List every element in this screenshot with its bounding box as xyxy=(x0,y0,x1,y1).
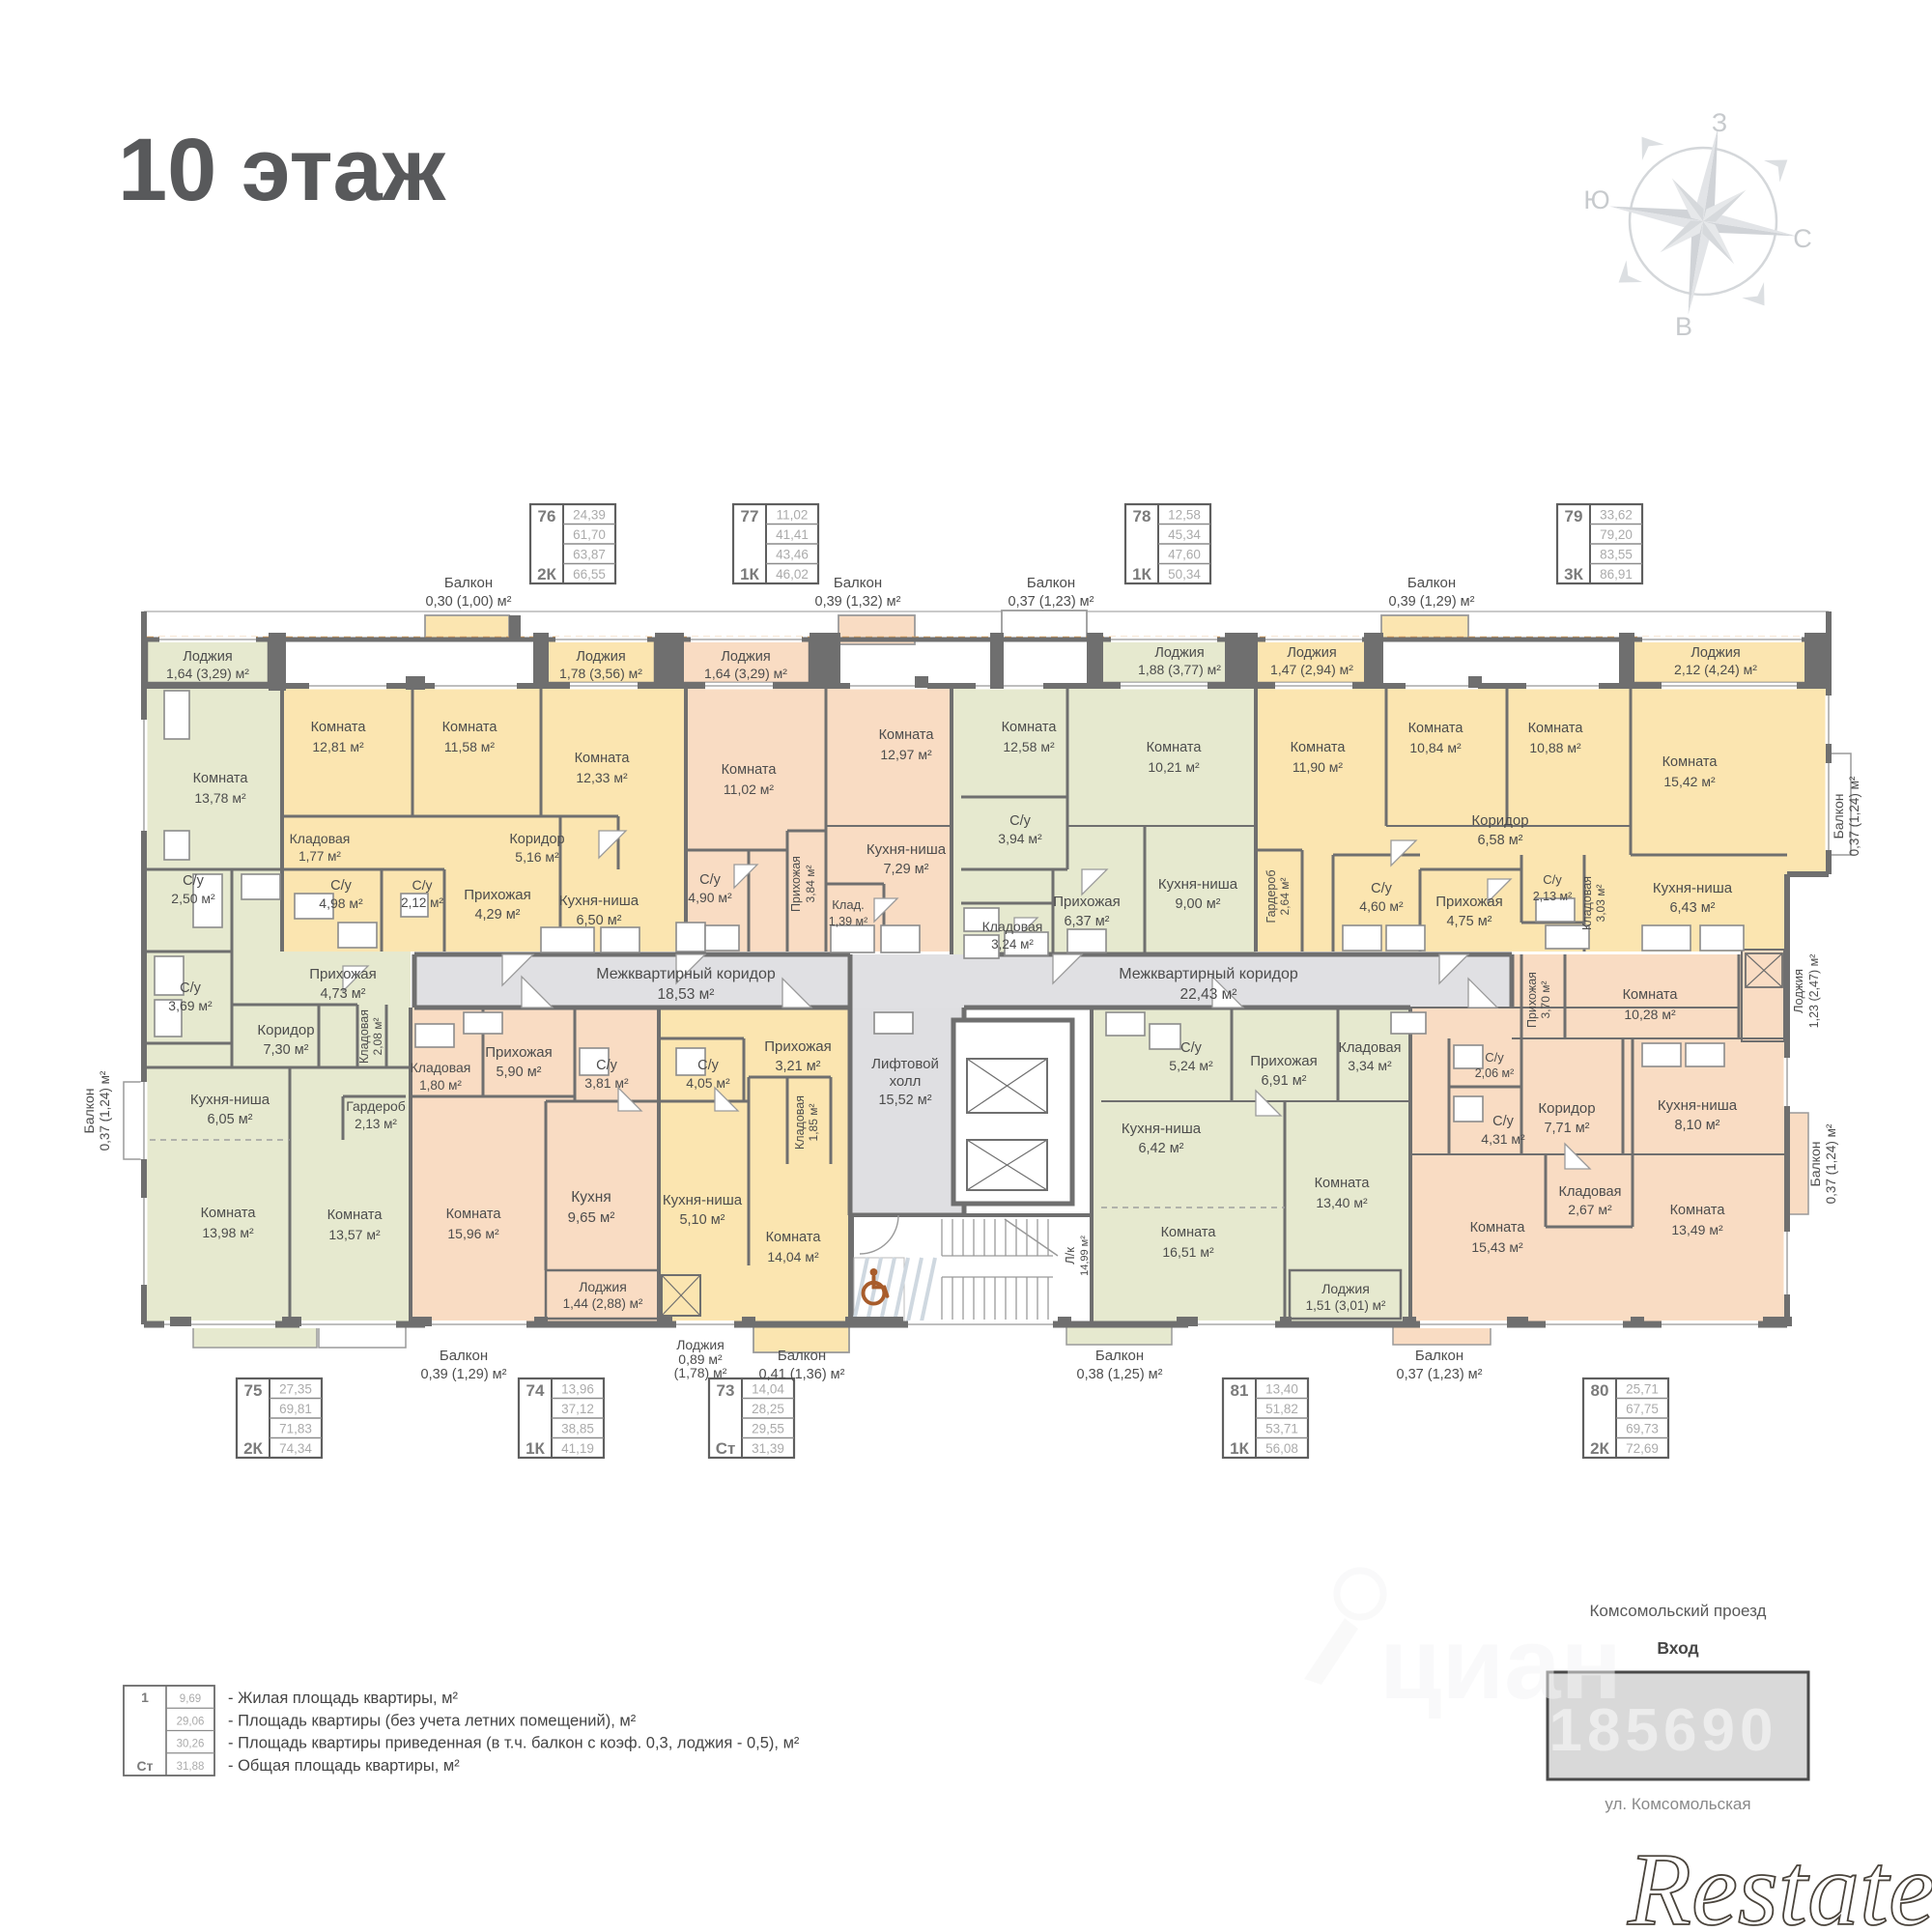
svg-text:4,75 м²: 4,75 м² xyxy=(1446,914,1492,929)
svg-text:Гардероб: Гардероб xyxy=(346,1098,406,1114)
svg-text:7,29 м²: 7,29 м² xyxy=(883,862,928,877)
svg-text:12,58: 12,58 xyxy=(1168,508,1201,523)
svg-text:13,40 м²: 13,40 м² xyxy=(1316,1195,1368,1210)
svg-text:6,43 м²: 6,43 м² xyxy=(1669,900,1715,916)
svg-text:3,21 м²: 3,21 м² xyxy=(775,1059,820,1074)
svg-text:72,69: 72,69 xyxy=(1626,1441,1659,1456)
svg-text:3,81 м²: 3,81 м² xyxy=(584,1075,629,1091)
svg-text:6,37 м²: 6,37 м² xyxy=(1064,914,1109,929)
svg-text:1,39 м²: 1,39 м² xyxy=(829,915,868,928)
svg-text:13,96: 13,96 xyxy=(561,1382,594,1397)
svg-text:Прихожая: Прихожая xyxy=(464,887,531,903)
svg-text:С/у: С/у xyxy=(1543,872,1562,887)
svg-text:Клад.: Клад. xyxy=(832,897,865,912)
svg-text:1К: 1К xyxy=(740,565,759,583)
svg-text:12,33 м²: 12,33 м² xyxy=(576,770,628,785)
svg-text:Кладовая: Кладовая xyxy=(1580,876,1594,930)
svg-text:41,41: 41,41 xyxy=(776,527,809,542)
svg-text:3,94 м²: 3,94 м² xyxy=(998,831,1042,846)
svg-text:Лоджия: Лоджия xyxy=(183,649,232,665)
svg-text:Комната: Комната xyxy=(1662,754,1719,770)
svg-text:77: 77 xyxy=(741,507,759,526)
svg-text:Комната: Комната xyxy=(1315,1176,1371,1191)
svg-text:Коридор: Коридор xyxy=(1538,1100,1595,1117)
svg-text:1: 1 xyxy=(141,1690,149,1705)
svg-text:Комната: Комната xyxy=(1470,1220,1526,1236)
svg-text:Балкон: Балкон xyxy=(834,575,882,591)
svg-text:18,53 м²: 18,53 м² xyxy=(658,986,715,1003)
svg-text:Лоджия: Лоджия xyxy=(1287,645,1336,661)
svg-text:- Площадь квартиры приведенна: - Площадь квартиры приведенная (в т.ч. б… xyxy=(228,1735,800,1752)
svg-text:Лоджия: Лоджия xyxy=(1690,645,1740,661)
svg-text:4,05 м²: 4,05 м² xyxy=(686,1075,730,1091)
svg-text:69,73: 69,73 xyxy=(1626,1422,1659,1436)
svg-text:13,78 м²: 13,78 м² xyxy=(194,790,246,806)
svg-text:2,64 м²: 2,64 м² xyxy=(1278,878,1292,916)
svg-text:Прихожая: Прихожая xyxy=(1053,894,1121,910)
svg-text:циан: циан xyxy=(1379,1607,1622,1720)
svg-text:14,99 м²: 14,99 м² xyxy=(1079,1236,1091,1276)
svg-text:3,84 м²: 3,84 м² xyxy=(804,866,817,903)
svg-text:С/у: С/у xyxy=(596,1058,618,1073)
svg-text:ул. Комсомольская: ул. Комсомольская xyxy=(1605,1795,1750,1813)
svg-text:Комната: Комната xyxy=(1623,987,1679,1003)
svg-text:1,23 (2,47) м²: 1,23 (2,47) м² xyxy=(1807,954,1821,1029)
svg-text:Балкон: Балкон xyxy=(1027,575,1075,591)
svg-text:Кухня-ниша: Кухня-ниша xyxy=(663,1192,743,1208)
svg-text:Restate: Restate xyxy=(1627,1833,1932,1932)
svg-text:Коридор: Коридор xyxy=(1471,812,1528,829)
svg-text:Лоджия: Лоджия xyxy=(579,1279,627,1294)
svg-text:2,67 м²: 2,67 м² xyxy=(1568,1202,1612,1217)
svg-text:6,05 м²: 6,05 м² xyxy=(207,1112,252,1127)
svg-text:22,43 м²: 22,43 м² xyxy=(1180,986,1237,1003)
svg-text:Лоджия: Лоджия xyxy=(576,649,625,665)
svg-text:2К: 2К xyxy=(1590,1439,1609,1458)
svg-text:30,26: 30,26 xyxy=(177,1739,205,1750)
svg-text:Комната: Комната xyxy=(442,720,498,735)
svg-text:0,37 (1,24) м²: 0,37 (1,24) м² xyxy=(1847,776,1861,856)
svg-text:Коридор: Коридор xyxy=(257,1022,314,1038)
svg-text:67,75: 67,75 xyxy=(1626,1402,1659,1416)
svg-text:Лифтовой: Лифтовой xyxy=(871,1056,939,1072)
svg-text:0,37 (1,24) м²: 0,37 (1,24) м² xyxy=(98,1070,112,1151)
svg-text:2,50 м²: 2,50 м² xyxy=(171,891,215,906)
svg-text:Комната: Комната xyxy=(1408,721,1464,736)
svg-text:74,34: 74,34 xyxy=(279,1441,312,1456)
svg-text:31,88: 31,88 xyxy=(177,1761,205,1773)
svg-text:3,69 м²: 3,69 м² xyxy=(168,998,213,1013)
svg-text:2,06 м²: 2,06 м² xyxy=(1475,1066,1515,1080)
svg-text:0,41 (1,36) м²: 0,41 (1,36) м² xyxy=(759,1367,845,1382)
svg-text:Балкон: Балкон xyxy=(1095,1348,1144,1364)
svg-text:14,04 м²: 14,04 м² xyxy=(767,1249,819,1264)
svg-text:10 этаж: 10 этаж xyxy=(118,121,446,219)
svg-text:З: З xyxy=(1712,108,1727,137)
svg-text:Прихожая: Прихожая xyxy=(789,856,803,912)
svg-text:4,31 м²: 4,31 м² xyxy=(1481,1131,1525,1147)
svg-text:10,28 м²: 10,28 м² xyxy=(1624,1007,1676,1022)
svg-text:2,13 м²: 2,13 м² xyxy=(355,1117,397,1131)
svg-text:Прихожая: Прихожая xyxy=(764,1038,832,1055)
svg-text:С/у: С/у xyxy=(1492,1114,1515,1129)
svg-text:80: 80 xyxy=(1591,1381,1609,1400)
svg-text:Комната: Комната xyxy=(766,1230,822,1245)
svg-text:Вход: Вход xyxy=(1657,1638,1698,1658)
svg-text:31,39: 31,39 xyxy=(752,1441,784,1456)
svg-text:Лоджия: Лоджия xyxy=(1154,645,1204,661)
svg-text:Л/к: Л/к xyxy=(1063,1247,1077,1264)
svg-text:Комната: Комната xyxy=(879,727,935,743)
svg-text:Балкон: Балкон xyxy=(1831,794,1846,839)
svg-text:- Площадь квартиры (без учета: - Площадь квартиры (без учета летних пом… xyxy=(228,1712,637,1729)
svg-text:Кладовая: Кладовая xyxy=(290,831,351,846)
svg-text:1,77 м²: 1,77 м² xyxy=(298,849,341,864)
svg-text:Комната: Комната xyxy=(1002,720,1058,735)
svg-text:38,85: 38,85 xyxy=(561,1422,594,1436)
svg-text:Лоджия: Лоджия xyxy=(1791,969,1805,1013)
svg-text:37,12: 37,12 xyxy=(561,1402,594,1416)
svg-text:3,24 м²: 3,24 м² xyxy=(991,937,1034,952)
svg-text:Кухня-ниша: Кухня-ниша xyxy=(1658,1097,1738,1114)
svg-text:Балкон: Балкон xyxy=(1415,1348,1463,1364)
svg-text:С/у: С/у xyxy=(1485,1050,1504,1065)
svg-text:12,58 м²: 12,58 м² xyxy=(1003,739,1055,754)
svg-text:- Общая площадь квартиры, м²: - Общая площадь квартиры, м² xyxy=(228,1757,460,1775)
svg-text:Прихожая: Прихожая xyxy=(1525,972,1539,1028)
svg-text:0,37 (1,23) м²: 0,37 (1,23) м² xyxy=(1397,1367,1483,1382)
svg-text:1,85 м²: 1,85 м² xyxy=(807,1104,820,1142)
svg-text:холл: холл xyxy=(890,1073,922,1090)
svg-text:С/у: С/у xyxy=(412,877,433,893)
svg-text:Комната: Комната xyxy=(1161,1225,1217,1240)
svg-text:Кухня-ниша: Кухня-ниша xyxy=(1653,880,1733,896)
svg-text:45,34: 45,34 xyxy=(1168,527,1201,542)
svg-text:27,35: 27,35 xyxy=(279,1382,312,1397)
svg-text:7,30 м²: 7,30 м² xyxy=(263,1042,308,1058)
svg-text:7,71 м²: 7,71 м² xyxy=(1544,1121,1589,1136)
svg-text:13,49 м²: 13,49 м² xyxy=(1671,1222,1723,1237)
svg-text:6,91 м²: 6,91 м² xyxy=(1261,1073,1306,1089)
svg-text:Межквартирный коридор: Межквартирный коридор xyxy=(596,966,776,982)
svg-text:24,39: 24,39 xyxy=(573,508,606,523)
svg-text:С/у: С/у xyxy=(697,1058,720,1073)
svg-text:1,64 (3,29) м²: 1,64 (3,29) м² xyxy=(704,666,787,681)
svg-text:С/у: С/у xyxy=(330,878,353,894)
svg-text:0,39 (1,29) м²: 0,39 (1,29) м² xyxy=(1389,594,1475,610)
svg-text:81: 81 xyxy=(1231,1381,1249,1400)
svg-text:Балкон: Балкон xyxy=(440,1348,488,1364)
svg-text:2К: 2К xyxy=(537,565,556,583)
svg-text:Кухня: Кухня xyxy=(571,1189,611,1206)
svg-text:Комната: Комната xyxy=(193,771,249,786)
svg-text:11,58 м²: 11,58 м² xyxy=(444,739,496,754)
svg-text:(1,78) м²: (1,78) м² xyxy=(674,1365,727,1380)
svg-text:4,60 м²: 4,60 м² xyxy=(1359,898,1404,914)
svg-text:Ст: Ст xyxy=(716,1439,736,1458)
svg-text:Кухня-ниша: Кухня-ниша xyxy=(559,893,639,909)
svg-text:41,19: 41,19 xyxy=(561,1441,594,1456)
svg-text:Комната: Комната xyxy=(327,1207,384,1223)
svg-text:Лоджия: Лоджия xyxy=(1321,1281,1370,1296)
svg-text:Кладовая: Кладовая xyxy=(357,1009,371,1064)
svg-text:Прихожая: Прихожая xyxy=(485,1044,553,1061)
svg-text:11,02 м²: 11,02 м² xyxy=(724,781,775,797)
svg-text:6,58 м²: 6,58 м² xyxy=(1477,833,1522,848)
svg-text:С/у: С/у xyxy=(1180,1040,1203,1056)
svg-text:С/у: С/у xyxy=(1009,813,1032,829)
svg-text:0,39 (1,29) м²: 0,39 (1,29) м² xyxy=(421,1367,507,1382)
svg-text:11,02: 11,02 xyxy=(777,508,809,523)
svg-text:5,10 м²: 5,10 м² xyxy=(679,1212,724,1228)
svg-text:1,64 (3,29) м²: 1,64 (3,29) м² xyxy=(166,666,249,681)
svg-text:5,90 м²: 5,90 м² xyxy=(496,1065,541,1080)
svg-text:4,98 м²: 4,98 м² xyxy=(319,895,363,911)
svg-text:Балкон: Балкон xyxy=(1807,1142,1823,1187)
svg-text:1,44 (2,88) м²: 1,44 (2,88) м² xyxy=(563,1296,643,1311)
svg-text:56,08: 56,08 xyxy=(1265,1441,1298,1456)
svg-text:6,42 м²: 6,42 м² xyxy=(1138,1141,1183,1156)
svg-text:Комната: Комната xyxy=(722,762,778,778)
svg-text:28,25: 28,25 xyxy=(752,1402,784,1416)
svg-text:12,81 м²: 12,81 м² xyxy=(312,739,364,754)
svg-text:66,55: 66,55 xyxy=(573,567,606,582)
svg-text:2,08 м²: 2,08 м² xyxy=(371,1018,384,1056)
svg-text:50,34: 50,34 xyxy=(1168,567,1201,582)
svg-text:9,00 м²: 9,00 м² xyxy=(1175,896,1220,912)
svg-text:Комната: Комната xyxy=(1291,740,1347,755)
svg-text:Комната: Комната xyxy=(446,1207,502,1222)
svg-text:13,57 м²: 13,57 м² xyxy=(328,1227,381,1242)
svg-text:Коридор: Коридор xyxy=(509,832,564,847)
svg-text:4,90 м²: 4,90 м² xyxy=(688,890,732,905)
svg-text:76: 76 xyxy=(538,507,556,526)
svg-text:46,02: 46,02 xyxy=(776,567,809,582)
svg-text:1К: 1К xyxy=(1132,565,1151,583)
svg-text:Кухня-ниша: Кухня-ниша xyxy=(190,1092,270,1108)
svg-text:79: 79 xyxy=(1565,507,1583,526)
svg-text:Лоджия: Лоджия xyxy=(676,1337,724,1352)
svg-text:3К: 3К xyxy=(1564,565,1583,583)
svg-text:1,88 (3,77) м²: 1,88 (3,77) м² xyxy=(1138,662,1221,677)
svg-text:0,39 (1,32) м²: 0,39 (1,32) м² xyxy=(815,594,901,610)
svg-text:79,20: 79,20 xyxy=(1600,527,1633,542)
svg-text:Прихожая: Прихожая xyxy=(1435,894,1503,910)
svg-text:Комната: Комната xyxy=(201,1206,257,1221)
svg-text:0,37 (1,23) м²: 0,37 (1,23) м² xyxy=(1009,594,1094,610)
svg-text:1,78 (3,56) м²: 1,78 (3,56) м² xyxy=(559,666,642,681)
svg-text:0,30 (1,00) м²: 0,30 (1,00) м² xyxy=(426,594,512,610)
svg-text:0,37 (1,24) м²: 0,37 (1,24) м² xyxy=(1824,1123,1838,1204)
svg-text:Комната: Комната xyxy=(1147,740,1203,755)
svg-text:- Жилая площадь квартиры, м²: - Жилая площадь квартиры, м² xyxy=(228,1690,458,1707)
svg-text:Кухня-ниша: Кухня-ниша xyxy=(1158,876,1238,893)
svg-text:Комната: Комната xyxy=(1670,1203,1726,1218)
svg-text:11,90 м²: 11,90 м² xyxy=(1293,759,1344,775)
svg-text:Лоджия: Лоджия xyxy=(721,649,770,665)
svg-text:10,84 м²: 10,84 м² xyxy=(1409,740,1462,755)
svg-text:Прихожая: Прихожая xyxy=(1250,1053,1318,1069)
svg-text:53,71: 53,71 xyxy=(1265,1422,1298,1436)
svg-text:15,52 м²: 15,52 м² xyxy=(878,1093,931,1108)
svg-text:Балкон: Балкон xyxy=(444,575,493,591)
svg-text:69,81: 69,81 xyxy=(279,1402,312,1416)
svg-text:С/у: С/у xyxy=(180,980,202,996)
svg-text:15,43 м²: 15,43 м² xyxy=(1471,1239,1523,1255)
svg-text:С/у: С/у xyxy=(183,873,205,889)
svg-text:3,03 м²: 3,03 м² xyxy=(1594,885,1607,923)
svg-text:Кладовая: Кладовая xyxy=(1339,1040,1402,1056)
svg-text:12,97 м²: 12,97 м² xyxy=(880,747,932,762)
svg-text:Кладовая: Кладовая xyxy=(982,919,1043,934)
svg-text:Кухня-ниша: Кухня-ниша xyxy=(867,841,947,858)
svg-text:51,82: 51,82 xyxy=(1265,1402,1298,1416)
svg-text:3,70 м²: 3,70 м² xyxy=(1539,981,1552,1019)
svg-text:0,38 (1,25) м²: 0,38 (1,25) м² xyxy=(1077,1367,1163,1382)
svg-text:15,42 м²: 15,42 м² xyxy=(1663,774,1716,789)
svg-text:С: С xyxy=(1793,224,1812,253)
svg-text:Межквартирный коридор: Межквартирный коридор xyxy=(1119,966,1298,982)
svg-text:Балкон: Балкон xyxy=(81,1089,97,1134)
svg-text:25,71: 25,71 xyxy=(1626,1382,1659,1397)
svg-text:2,13 м²: 2,13 м² xyxy=(1533,890,1573,903)
svg-text:1К: 1К xyxy=(1230,1439,1249,1458)
svg-text:71,83: 71,83 xyxy=(279,1422,312,1436)
svg-text:3,34 м²: 3,34 м² xyxy=(1348,1058,1392,1073)
svg-text:Гардероб: Гардероб xyxy=(1264,870,1278,923)
svg-text:5,16 м²: 5,16 м² xyxy=(515,849,559,865)
svg-text:10,21 м²: 10,21 м² xyxy=(1148,759,1200,775)
svg-text:33,62: 33,62 xyxy=(1600,508,1633,523)
svg-text:75: 75 xyxy=(244,1381,263,1400)
svg-text:14,04: 14,04 xyxy=(752,1382,784,1397)
svg-text:8,10 м²: 8,10 м² xyxy=(1674,1118,1719,1133)
svg-text:83,55: 83,55 xyxy=(1600,548,1633,562)
svg-text:1,47 (2,94) м²: 1,47 (2,94) м² xyxy=(1270,662,1353,677)
svg-text:15,96 м²: 15,96 м² xyxy=(447,1226,499,1241)
svg-text:Комната: Комната xyxy=(311,720,367,735)
svg-text:47,60: 47,60 xyxy=(1168,548,1201,562)
svg-text:Комната: Комната xyxy=(575,751,631,766)
svg-text:Ю: Ю xyxy=(1583,185,1609,214)
svg-text:1,80 м²: 1,80 м² xyxy=(419,1078,462,1093)
svg-text:78: 78 xyxy=(1133,507,1151,526)
svg-text:6,50 м²: 6,50 м² xyxy=(576,913,621,928)
svg-text:29,06: 29,06 xyxy=(177,1716,205,1727)
svg-text:Ст: Ст xyxy=(137,1758,154,1774)
svg-text:5,24 м²: 5,24 м² xyxy=(1169,1058,1213,1073)
svg-text:43,46: 43,46 xyxy=(776,548,809,562)
svg-text:1,51 (3,01) м²: 1,51 (3,01) м² xyxy=(1306,1298,1386,1313)
svg-text:10,88 м²: 10,88 м² xyxy=(1529,740,1581,755)
svg-text:Кладовая: Кладовая xyxy=(1559,1184,1622,1200)
svg-text:1К: 1К xyxy=(526,1439,545,1458)
svg-text:29,55: 29,55 xyxy=(752,1422,784,1436)
svg-text:63,87: 63,87 xyxy=(573,548,606,562)
svg-text:Кухня-ниша: Кухня-ниша xyxy=(1122,1121,1202,1137)
svg-text:73: 73 xyxy=(717,1381,735,1400)
svg-text:Комната: Комната xyxy=(1528,721,1584,736)
svg-text:2,12 (4,24) м²: 2,12 (4,24) м² xyxy=(1674,662,1757,677)
svg-text:Прихожая: Прихожая xyxy=(309,966,377,982)
svg-text:В: В xyxy=(1675,312,1692,341)
svg-text:4,29 м²: 4,29 м² xyxy=(474,907,520,923)
svg-text:9,65 м²: 9,65 м² xyxy=(568,1209,615,1226)
svg-text:2,12 м²: 2,12 м² xyxy=(401,895,443,910)
svg-text:Кладовая: Кладовая xyxy=(793,1095,807,1150)
svg-text:61,70: 61,70 xyxy=(573,527,606,542)
svg-text:16,51 м²: 16,51 м² xyxy=(1162,1244,1214,1260)
svg-text:13,98 м²: 13,98 м² xyxy=(202,1225,254,1240)
svg-text:9,69: 9,69 xyxy=(180,1693,201,1705)
svg-text:С/у: С/у xyxy=(699,872,722,888)
svg-text:86,91: 86,91 xyxy=(1600,567,1633,582)
svg-text:2К: 2К xyxy=(243,1439,263,1458)
svg-text:Кладовая: Кладовая xyxy=(411,1060,471,1075)
svg-text:4,73 м²: 4,73 м² xyxy=(320,986,365,1002)
svg-text:Балкон: Балкон xyxy=(1407,575,1456,591)
svg-text:С/у: С/у xyxy=(1371,881,1393,896)
svg-text:Балкон: Балкон xyxy=(778,1348,826,1364)
svg-text:13,40: 13,40 xyxy=(1265,1382,1298,1397)
svg-text:74: 74 xyxy=(526,1381,545,1400)
